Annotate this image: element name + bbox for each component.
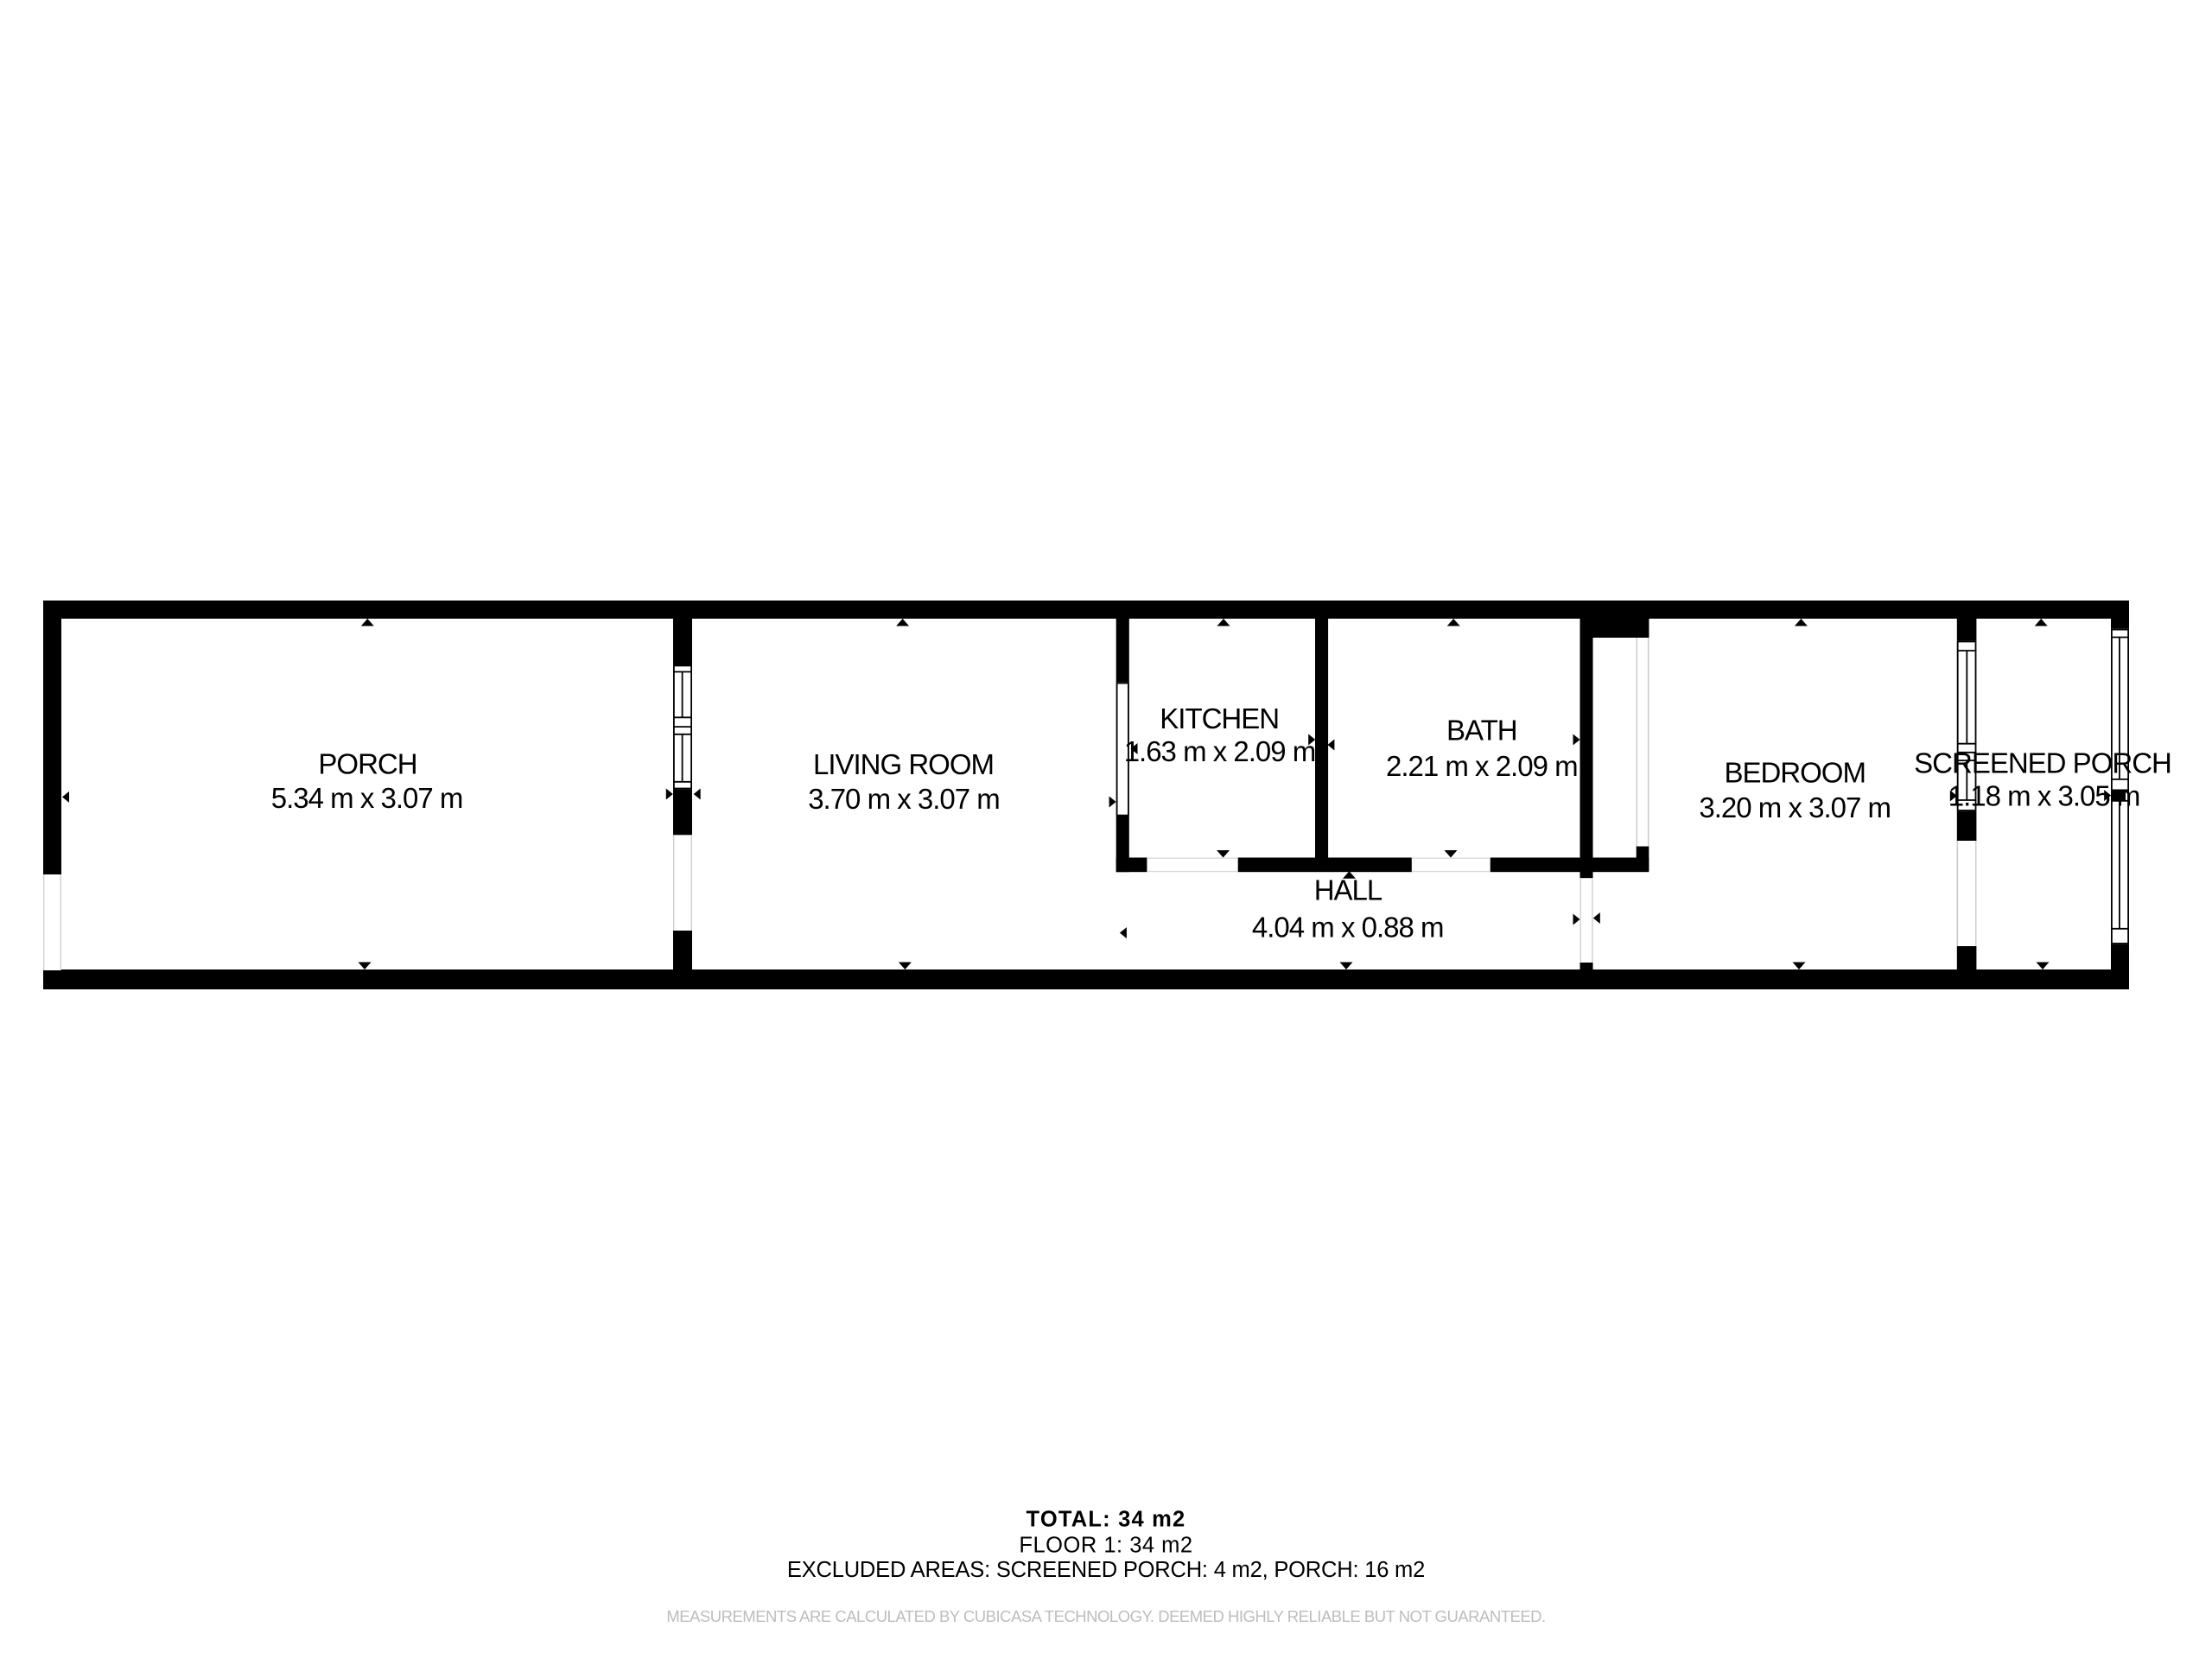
svg-text:TOTAL: 34 m2: TOTAL: 34 m2 bbox=[1027, 1508, 1186, 1532]
svg-text:4.04 m x 0.88 m: 4.04 m x 0.88 m bbox=[1252, 912, 1444, 944]
svg-text:FLOOR 1: 34 m2: FLOOR 1: 34 m2 bbox=[1019, 1534, 1192, 1558]
svg-text:3.70 m x 3.07 m: 3.70 m x 3.07 m bbox=[808, 783, 1000, 815]
svg-text:5.34 m x 3.07 m: 5.34 m x 3.07 m bbox=[271, 782, 463, 814]
svg-text:BEDROOM: BEDROOM bbox=[1724, 757, 1866, 789]
svg-text:1.63 m x 2.09 m: 1.63 m x 2.09 m bbox=[1124, 735, 1316, 767]
svg-text:HALL: HALL bbox=[1314, 874, 1382, 906]
svg-text:LIVING ROOM: LIVING ROOM bbox=[813, 748, 994, 780]
svg-text:MEASUREMENTS ARE CALCULATED BY: MEASUREMENTS ARE CALCULATED BY CUBICASA … bbox=[666, 1607, 1545, 1625]
svg-text:BATH: BATH bbox=[1446, 715, 1517, 747]
svg-text:PORCH: PORCH bbox=[318, 747, 416, 779]
svg-text:2.21 m x 2.09 m: 2.21 m x 2.09 m bbox=[1386, 750, 1578, 782]
svg-text:EXCLUDED AREAS: SCREENED PORCH: EXCLUDED AREAS: SCREENED PORCH: 4 m2, PO… bbox=[787, 1558, 1425, 1582]
svg-text:3.20 m x 3.07 m: 3.20 m x 3.07 m bbox=[1699, 791, 1891, 823]
svg-text:SCREENED PORCH: SCREENED PORCH bbox=[1914, 747, 2171, 779]
svg-text:KITCHEN: KITCHEN bbox=[1160, 702, 1279, 734]
